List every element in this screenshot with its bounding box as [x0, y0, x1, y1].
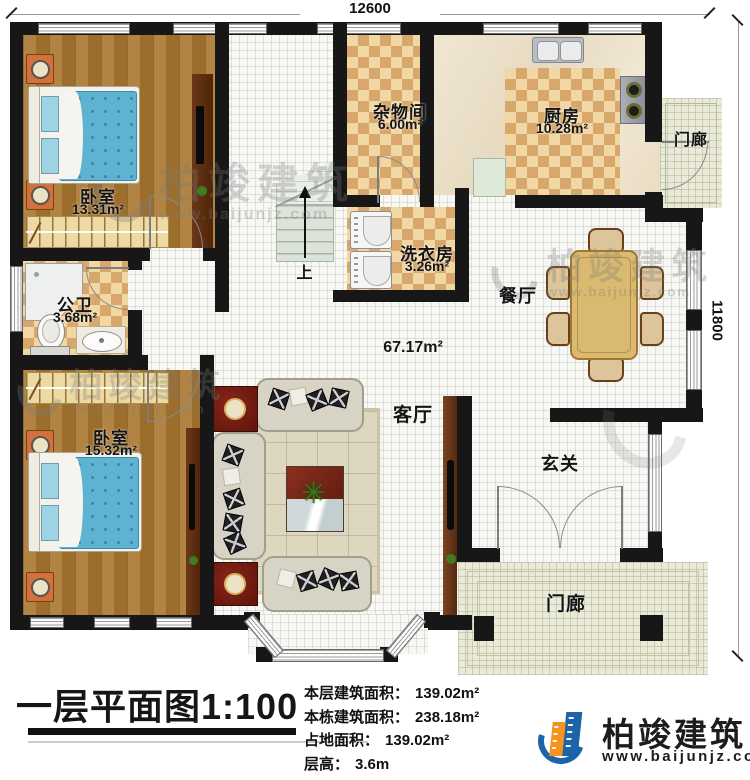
window — [156, 617, 192, 628]
double-bed — [28, 452, 142, 552]
washing-machine — [350, 211, 392, 249]
stove — [620, 76, 648, 124]
door-leaf — [377, 156, 379, 203]
dining-label: 餐厅 — [488, 282, 548, 308]
tv — [189, 464, 195, 530]
plant-dot — [189, 556, 198, 565]
living-label: 客厅 — [378, 400, 448, 427]
dining-chair — [640, 266, 664, 300]
wash-basin — [76, 326, 126, 354]
nightstand — [26, 54, 54, 84]
door-leaf — [497, 486, 499, 549]
dimension-top-value: 12600 — [300, 0, 440, 17]
storage-area: 6.00m² — [357, 116, 443, 132]
foyer-label: 玄关 — [528, 450, 592, 476]
wall — [645, 192, 662, 208]
tv-wall-panel — [443, 396, 457, 616]
window — [588, 23, 642, 34]
nightstand — [26, 572, 54, 602]
wall — [620, 548, 663, 562]
window — [38, 23, 130, 34]
bedroom-2-area: 15.32m² — [73, 442, 149, 458]
double-bed — [28, 86, 140, 184]
tv-cabinet — [186, 428, 201, 618]
window — [94, 617, 130, 628]
door-leaf — [149, 195, 151, 249]
laundry-area: 3.26m² — [394, 258, 460, 274]
sofa-top — [256, 378, 364, 432]
porch-column — [640, 615, 663, 641]
exterior-mask-top-right — [662, 22, 724, 98]
wall — [203, 248, 215, 261]
wall — [214, 615, 248, 630]
plan-title-text: 一层平面图 — [16, 686, 201, 727]
wall — [515, 195, 663, 208]
porch-top-label: 门廊 — [662, 126, 720, 150]
brand-url: www.baijunjz.com — [602, 748, 750, 765]
brand-logo-icon — [538, 710, 594, 766]
dining-chair — [546, 266, 570, 300]
kitchen-area: 10.28m² — [520, 120, 604, 136]
sofa-left — [212, 432, 266, 560]
wall — [645, 22, 662, 142]
coffee-table: ✳ — [286, 466, 344, 532]
porch-bottom-label: 门廊 — [534, 589, 598, 616]
window — [686, 250, 702, 310]
bay-corner — [424, 612, 440, 628]
nightstand — [26, 180, 54, 210]
dining-chair — [588, 358, 624, 382]
end-table — [212, 386, 258, 432]
plant-dot — [446, 554, 456, 564]
tv — [196, 106, 204, 164]
stat-row: 占地面积：139.02m² — [304, 729, 479, 753]
end-table — [212, 562, 258, 606]
dining-chair — [588, 228, 624, 252]
bay-window — [272, 649, 384, 662]
wall — [333, 22, 347, 207]
window — [10, 266, 23, 332]
dimension-right-value: 11800 — [709, 290, 726, 352]
stat-row: 本栋建筑面积：238.18m² — [304, 706, 479, 730]
plant-icon: ✳ — [301, 479, 326, 509]
window — [317, 23, 401, 34]
open-area-label: 67.17m² — [358, 339, 468, 357]
door-leaf — [86, 267, 129, 269]
wall — [215, 22, 229, 312]
dining-chair — [640, 312, 664, 346]
plan-title: 一层平面图1:100 — [16, 678, 298, 730]
title-underline — [28, 728, 296, 735]
porch-bottom — [458, 562, 708, 675]
wall — [645, 208, 703, 222]
stairs-arrow-head — [299, 186, 311, 198]
plant-dot — [197, 186, 207, 196]
plan-scale: 1:100 — [201, 686, 298, 727]
stats-block: 本层建筑面积：139.02m² 本栋建筑面积：238.18m² 占地面积：139… — [304, 682, 479, 776]
wall — [200, 355, 214, 630]
window — [30, 617, 64, 628]
washing-machine — [350, 251, 392, 289]
stat-row: 层高：3.6m — [304, 753, 479, 777]
bathroom-area: 3.68m² — [40, 309, 110, 325]
dining-chair — [546, 312, 570, 346]
window — [686, 330, 702, 390]
fridge — [473, 158, 506, 197]
stat-row: 本层建筑面积：139.02m² — [304, 682, 479, 706]
stairs-direction-arrow — [304, 196, 306, 258]
door-leaf — [147, 370, 149, 423]
porch-column — [474, 616, 494, 641]
dimension-tick — [703, 7, 715, 19]
window — [483, 23, 559, 34]
dining-table — [570, 250, 638, 360]
wardrobe — [25, 216, 169, 248]
wall — [333, 195, 380, 207]
floor-plan-page: ✳ — [0, 0, 750, 780]
bedroom-1-area: 13.31m² — [60, 201, 136, 217]
sofa-bottom — [262, 556, 372, 612]
wall — [457, 396, 472, 562]
door-leaf — [621, 486, 623, 549]
tv — [447, 460, 454, 530]
dimension-line-right — [738, 22, 739, 658]
wall — [128, 310, 142, 355]
wall — [333, 290, 469, 302]
wall — [128, 248, 142, 270]
dimension-tick — [5, 7, 17, 19]
wall — [10, 355, 148, 370]
kitchen-sink — [532, 37, 584, 63]
stairs-up-label: 上 — [294, 259, 316, 283]
